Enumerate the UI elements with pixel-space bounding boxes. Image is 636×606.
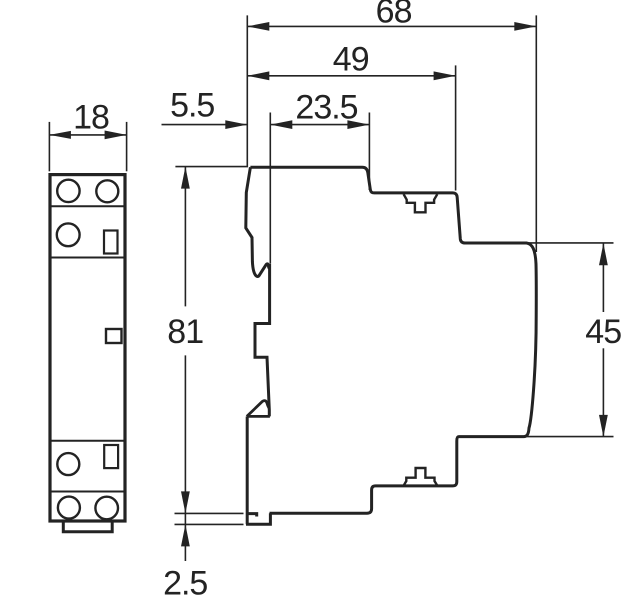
svg-text:49: 49 [333,41,369,79]
svg-text:2.5: 2.5 [163,565,207,603]
svg-text:23.5: 23.5 [295,88,357,126]
svg-text:81: 81 [167,313,203,351]
svg-text:45: 45 [585,313,621,351]
svg-text:68: 68 [376,0,412,31]
svg-text:18: 18 [73,99,109,137]
svg-text:5.5: 5.5 [170,87,214,125]
